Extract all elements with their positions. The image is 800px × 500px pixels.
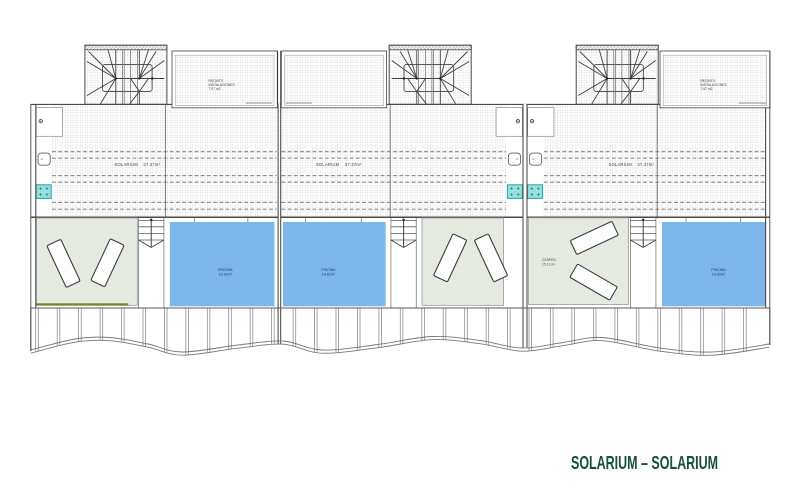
svg-text:7.97 m2: 7.97 m2 <box>701 87 713 91</box>
svg-text:PISCINA: PISCINA <box>218 268 233 272</box>
svg-text:15.13 m²: 15.13 m² <box>542 262 556 266</box>
svg-text:SOLARIUM – SOLARIUM: SOLARIUM – SOLARIUM <box>571 453 718 473</box>
svg-text:10.62m²: 10.62m² <box>322 272 336 276</box>
svg-text:10.62m²: 10.62m² <box>712 272 726 276</box>
svg-text:10.92m²: 10.92m² <box>219 272 233 276</box>
svg-text:7.97 m2: 7.97 m2 <box>209 87 221 91</box>
svg-text:SOLARIUM 37.37m²: SOLARIUM 37.37m² <box>115 162 161 167</box>
svg-text:PISCINA: PISCINA <box>321 268 336 272</box>
svg-text:SOLARIUM 37.37m²: SOLARIUM 37.37m² <box>316 162 362 167</box>
svg-text:CESPED: CESPED <box>542 258 556 262</box>
svg-text:PISCINA: PISCINA <box>711 268 726 272</box>
svg-text:SOLARIUM 37.37m²: SOLARIUM 37.37m² <box>609 162 655 167</box>
